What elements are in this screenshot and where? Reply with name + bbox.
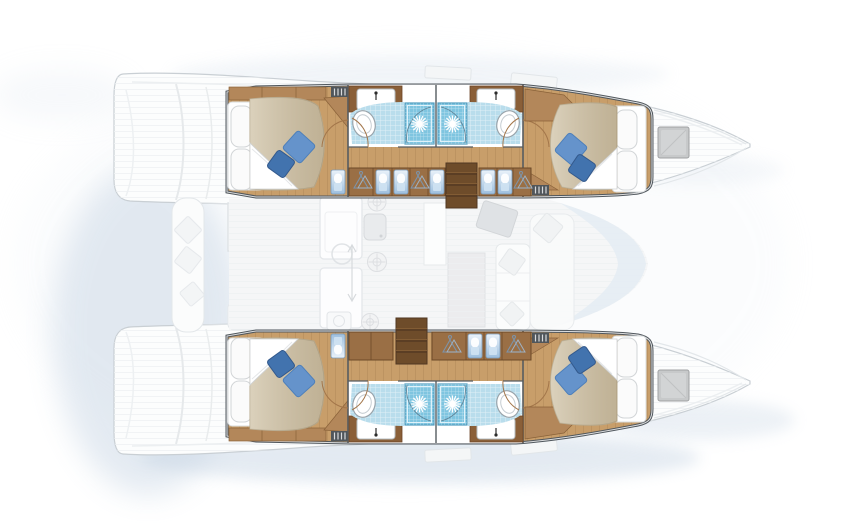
stove-burner-icon — [368, 253, 387, 272]
stove-sink-dark — [364, 214, 386, 240]
galley-sink-square — [327, 312, 351, 330]
companionway-stairs — [396, 318, 427, 364]
companionway-stairs — [446, 163, 477, 208]
stove-burner-icon — [362, 314, 379, 331]
floorplan-canvas — [0, 0, 853, 528]
salon-console — [424, 203, 446, 265]
catamaran-floorplan — [0, 0, 853, 528]
galley-counter — [320, 197, 362, 259]
salon — [229, 193, 648, 331]
